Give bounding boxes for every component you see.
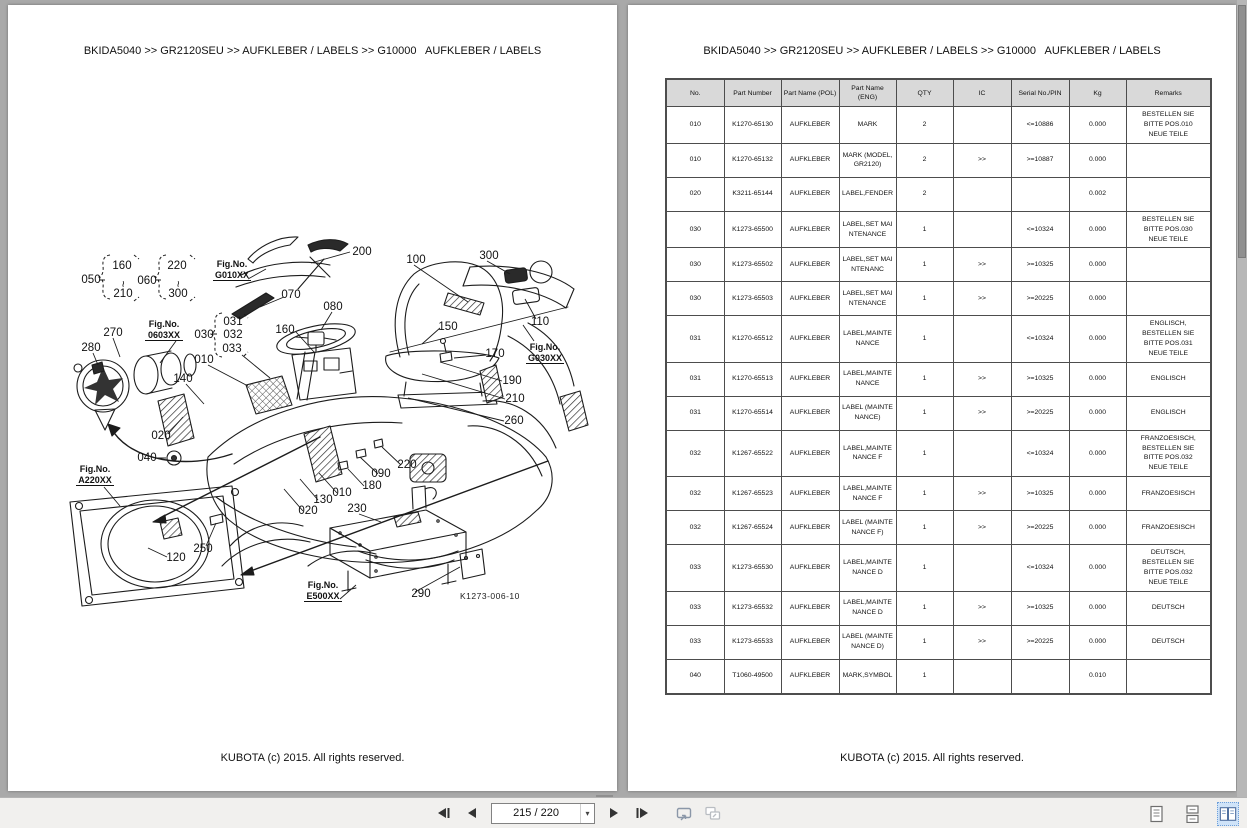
table-cell: K1267-65522: [724, 430, 781, 476]
table-cell: 1: [896, 211, 953, 248]
table-cell: >=10325: [1011, 248, 1069, 282]
table-row: 033K1273-65533AUFKLEBERLABEL (MAINTENANC…: [666, 625, 1211, 659]
table-cell: <=10324: [1011, 316, 1069, 362]
part-callout: 250: [193, 543, 212, 555]
table-cell: K1270-65132: [724, 143, 781, 177]
table-row: 033K1273-65532AUFKLEBERLABEL,MAINTENANCE…: [666, 591, 1211, 625]
table-cell: MARK: [839, 107, 896, 144]
column-header: Part Name (ENG): [839, 79, 896, 107]
figure-reference: Fig.No.A220XX: [76, 464, 114, 486]
table-cell: >>: [953, 396, 1011, 430]
table-cell: 1: [896, 511, 953, 545]
part-callout: 070: [281, 289, 300, 301]
table-cell: FRANZOESISCH: [1126, 511, 1211, 545]
table-cell: <=10324: [1011, 545, 1069, 591]
part-callout: 220: [397, 459, 416, 471]
table-cell: >=20225: [1011, 625, 1069, 659]
table-cell: 2: [896, 177, 953, 211]
part-callout: 220: [167, 260, 186, 272]
table-cell: 0.000: [1069, 282, 1126, 316]
single-page-view-icon: [1148, 805, 1164, 823]
tractor-exploded-diagram: 050160~210060220~30020010030007008011015…: [8, 5, 617, 791]
table-cell: 1: [896, 591, 953, 625]
table-cell: 2: [896, 107, 953, 144]
table-cell: LABEL,MAINTENANCE D: [839, 591, 896, 625]
figure-reference-value: G030XX: [528, 353, 562, 363]
table-cell: FRANZOESISCH: [1126, 477, 1211, 511]
table-cell: 0.000: [1069, 316, 1126, 362]
part-callout: 160: [275, 324, 294, 336]
table-cell: 0.010: [1069, 659, 1126, 694]
table-cell: K1273-65530: [724, 545, 781, 591]
part-callout: ~: [116, 281, 128, 288]
table-cell: LABEL,SET MAINTENANCE: [839, 282, 896, 316]
part-callout: 120: [166, 552, 185, 564]
table-cell: 0.000: [1069, 511, 1126, 545]
vertical-scrollbar[interactable]: [1237, 0, 1247, 797]
table-cell: 0.000: [1069, 211, 1126, 248]
table-cell: MARK (MODEL,GR2120): [839, 143, 896, 177]
table-cell: AUFKLEBER: [781, 143, 839, 177]
part-callout: 100: [406, 254, 425, 266]
table-row: 030K1273-65502AUFKLEBERLABEL,SET MAINTEN…: [666, 248, 1211, 282]
part-callout: 300: [168, 288, 187, 300]
table-cell: 033: [666, 625, 724, 659]
table-cell: AUFKLEBER: [781, 316, 839, 362]
part-callout: 140: [173, 373, 192, 385]
column-header: Remarks: [1126, 79, 1211, 107]
table-cell: AUFKLEBER: [781, 591, 839, 625]
table-cell: [1011, 177, 1069, 211]
table-cell: K1273-65532: [724, 591, 781, 625]
part-callout: 150: [438, 321, 457, 333]
table-cell: 030: [666, 211, 724, 248]
table-cell: LABEL,SET MAINTENANC: [839, 248, 896, 282]
viewer-toolbar: 215 / 220 ▾: [0, 797, 1247, 828]
previous-page-button[interactable]: [462, 802, 484, 824]
table-cell: [953, 107, 1011, 144]
next-page-button[interactable]: [602, 802, 624, 824]
two-page-view-icon: [1219, 805, 1237, 823]
right-page: BKIDA5040 >> GR2120SEU >> AUFKLEBER / LA…: [628, 5, 1236, 791]
previous-page-icon: [465, 805, 481, 821]
table-row: 032K1267-65523AUFKLEBERLABEL,MAINTENANCE…: [666, 477, 1211, 511]
table-cell: 0.000: [1069, 362, 1126, 396]
part-callout: 180: [362, 480, 381, 492]
header-row: No.Part NumberPart Name (POL)Part Name (…: [666, 79, 1211, 107]
table-cell: >>: [953, 477, 1011, 511]
table-cell: 0.000: [1069, 143, 1126, 177]
table-cell: LABEL,MAINTENANCE: [839, 362, 896, 396]
table-cell: AUFKLEBER: [781, 282, 839, 316]
table-cell: ENGLISCH: [1126, 396, 1211, 430]
table-cell: 0.000: [1069, 477, 1126, 511]
table-cell: 031: [666, 396, 724, 430]
part-callout: 290: [411, 588, 430, 600]
table-row: 040T1060-49500AUFKLEBERMARK,SYMBOL10.010: [666, 659, 1211, 694]
table-cell: >=20225: [1011, 511, 1069, 545]
column-header: No.: [666, 79, 724, 107]
table-cell: AUFKLEBER: [781, 362, 839, 396]
chevron-down-icon: ▾: [580, 804, 594, 823]
first-page-button[interactable]: [433, 802, 455, 824]
table-cell: AUFKLEBER: [781, 396, 839, 430]
table-cell: 0.000: [1069, 545, 1126, 591]
part-callout: 110: [531, 316, 549, 328]
copyright-footer: KUBOTA (c) 2015. All rights reserved.: [628, 752, 1236, 764]
table-cell: [1126, 177, 1211, 211]
table-cell: [953, 316, 1011, 362]
table-row: 030K1273-65503AUFKLEBERLABEL,SET MAINTEN…: [666, 282, 1211, 316]
table-cell: K1270-65130: [724, 107, 781, 144]
table-cell: >=10325: [1011, 591, 1069, 625]
table-cell: T1060-49500: [724, 659, 781, 694]
part-callout: 090: [371, 468, 390, 480]
table-cell: [953, 177, 1011, 211]
parts-table-header: No.Part NumberPart Name (POL)Part Name (…: [666, 79, 1211, 107]
table-cell: 030: [666, 248, 724, 282]
table-cell: [953, 545, 1011, 591]
part-callout: 031: [223, 316, 242, 328]
column-header: Serial No./PIN: [1011, 79, 1069, 107]
table-cell: >>: [953, 362, 1011, 396]
table-cell: >=10325: [1011, 362, 1069, 396]
part-callout: 020: [298, 505, 317, 517]
table-cell: 032: [666, 477, 724, 511]
page-indicator: 215 / 220: [492, 807, 580, 819]
table-row: 030K1273-65500AUFKLEBERLABEL,SET MAINTEN…: [666, 211, 1211, 248]
breadcrumb: BKIDA5040 >> GR2120SEU >> AUFKLEBER / LA…: [628, 45, 1236, 57]
last-page-icon: [634, 805, 650, 821]
table-cell: 1: [896, 248, 953, 282]
continuous-view-icon: [1184, 805, 1200, 823]
table-cell: 033: [666, 591, 724, 625]
table-cell: AUFKLEBER: [781, 545, 839, 591]
parts-table: No.Part NumberPart Name (POL)Part Name (…: [665, 78, 1212, 695]
table-cell: 1: [896, 625, 953, 659]
table-cell: LABEL (MAINTENANCE F): [839, 511, 896, 545]
table-cell: [1126, 248, 1211, 282]
table-cell: K1273-65533: [724, 625, 781, 659]
table-row: 032K1267-65524AUFKLEBERLABEL (MAINTENANC…: [666, 511, 1211, 545]
table-cell: >>: [953, 282, 1011, 316]
table-cell: ENGLISCH, BESTELLEN SIE BITTE POS.031 NE…: [1126, 316, 1211, 362]
table-cell: K1267-65524: [724, 511, 781, 545]
next-page-icon: [605, 805, 621, 821]
table-cell: 1: [896, 659, 953, 694]
parts-table-body: 010K1270-65130AUFKLEBERMARK2<=108860.000…: [666, 107, 1211, 694]
table-cell: <=10886: [1011, 107, 1069, 144]
part-callout: ~: [171, 281, 183, 288]
figure-reference: Fig.No.G010XX: [213, 259, 251, 281]
table-cell: AUFKLEBER: [781, 248, 839, 282]
table-row: 031K1270-65512AUFKLEBERLABEL,MAINTENANCE…: [666, 316, 1211, 362]
first-page-icon: [436, 805, 452, 821]
part-callout: 030: [194, 329, 213, 341]
table-cell: 1: [896, 362, 953, 396]
column-header: QTY: [896, 79, 953, 107]
popout-copy-button[interactable]: [702, 802, 724, 824]
table-cell: >>: [953, 248, 1011, 282]
table-cell: 032: [666, 430, 724, 476]
table-cell: [1126, 659, 1211, 694]
table-cell: LABEL,MAINTENANCE D: [839, 545, 896, 591]
figure-reference-value: E500XX: [306, 591, 339, 601]
table-row: 033K1273-65530AUFKLEBERLABEL,MAINTENANCE…: [666, 545, 1211, 591]
table-cell: [953, 211, 1011, 248]
table-cell: LABEL,MAINTENANCE: [839, 316, 896, 362]
table-cell: 030: [666, 282, 724, 316]
part-callout: 270: [103, 327, 122, 339]
figure-reference: Fig.No.0603XX: [145, 319, 183, 341]
table-cell: K1273-65500: [724, 211, 781, 248]
column-header: Kg: [1069, 79, 1126, 107]
table-cell: >=20225: [1011, 282, 1069, 316]
table-cell: BESTELLEN SIE BITTE POS.010 NEUE TEILE: [1126, 107, 1211, 144]
part-callout: 160: [112, 260, 131, 272]
part-callout: 200: [352, 246, 371, 258]
part-callout: 010: [194, 354, 213, 366]
part-callout: 170: [485, 348, 504, 360]
figure-reference: Fig.No.G030XX: [526, 342, 564, 364]
table-cell: LABEL (MAINTENANCE D): [839, 625, 896, 659]
table-cell: 0.000: [1069, 591, 1126, 625]
table-cell: K1273-65502: [724, 248, 781, 282]
continuous-view-button[interactable]: [1181, 802, 1203, 826]
scrollbar-thumb[interactable]: [1238, 5, 1246, 258]
table-cell: DEUTSCH: [1126, 625, 1211, 659]
part-callout: 190: [502, 375, 521, 387]
table-cell: 0.000: [1069, 396, 1126, 430]
figure-reference: Fig.No.E500XX: [304, 580, 342, 602]
table-cell: AUFKLEBER: [781, 625, 839, 659]
table-cell: AUFKLEBER: [781, 211, 839, 248]
table-cell: DEUTSCH, BESTELLEN SIE BITTE POS.032 NEU…: [1126, 545, 1211, 591]
table-cell: >>: [953, 591, 1011, 625]
drawing-number: K1273-006-10: [460, 591, 520, 601]
table-cell: LABEL,FENDER: [839, 177, 896, 211]
table-cell: 1: [896, 316, 953, 362]
table-cell: 010: [666, 143, 724, 177]
part-callout: 210: [505, 393, 524, 405]
table-cell: <=10324: [1011, 430, 1069, 476]
copyright-footer: KUBOTA (c) 2015. All rights reserved.: [8, 752, 617, 764]
figure-reference-value: G010XX: [215, 270, 249, 280]
column-header: IC: [953, 79, 1011, 107]
table-cell: 040: [666, 659, 724, 694]
table-cell: 032: [666, 511, 724, 545]
part-callout: 032: [223, 329, 242, 341]
popout-page-button[interactable]: [673, 802, 695, 824]
table-cell: 0.000: [1069, 430, 1126, 476]
table-cell: AUFKLEBER: [781, 477, 839, 511]
table-cell: 031: [666, 316, 724, 362]
part-callout: 010: [332, 487, 351, 499]
table-cell: >>: [953, 143, 1011, 177]
table-cell: 020: [666, 177, 724, 211]
table-cell: AUFKLEBER: [781, 177, 839, 211]
table-cell: 2: [896, 143, 953, 177]
single-page-view-button[interactable]: [1145, 802, 1167, 826]
table-cell: [953, 430, 1011, 476]
table-cell: 031: [666, 362, 724, 396]
table-cell: 1: [896, 430, 953, 476]
table-cell: 1: [896, 282, 953, 316]
page-navigation-group: 215 / 220 ▾: [433, 802, 724, 824]
part-callout: 280: [81, 342, 100, 354]
column-header: Part Name (POL): [781, 79, 839, 107]
column-header: Part Number: [724, 79, 781, 107]
table-cell: ENGLISCH: [1126, 362, 1211, 396]
table-row: 031K1270-65514AUFKLEBERLABEL (MAINTENANC…: [666, 396, 1211, 430]
figure-reference-value: A220XX: [78, 475, 112, 485]
table-cell: >=10325: [1011, 477, 1069, 511]
figure-reference-value: 0603XX: [148, 330, 180, 340]
viewer-window: BKIDA5040 >> GR2120SEU >> AUFKLEBER / LA…: [0, 0, 1247, 828]
table-row: 020K3211-65144AUFKLEBERLABEL,FENDER20.00…: [666, 177, 1211, 211]
table-cell: 0.000: [1069, 107, 1126, 144]
table-cell: K1270-65514: [724, 396, 781, 430]
table-cell: 033: [666, 545, 724, 591]
table-cell: AUFKLEBER: [781, 511, 839, 545]
part-callout: 260: [504, 415, 523, 427]
part-callout: 020: [151, 430, 170, 442]
part-callout: 050: [81, 274, 100, 286]
part-callout: 300: [479, 250, 498, 262]
table-row: 032K1267-65522AUFKLEBERLABEL,MAINTENANCE…: [666, 430, 1211, 476]
table-cell: >=10887: [1011, 143, 1069, 177]
table-cell: >=20225: [1011, 396, 1069, 430]
table-cell: K1267-65523: [724, 477, 781, 511]
last-page-button[interactable]: [631, 802, 653, 824]
table-cell: K1270-65513: [724, 362, 781, 396]
part-callout: 040: [137, 452, 156, 464]
two-page-view-button[interactable]: [1217, 802, 1239, 826]
table-cell: LABEL,MAINTENANCE F: [839, 430, 896, 476]
table-cell: >>: [953, 625, 1011, 659]
table-cell: LABEL,SET MAINTENANCE: [839, 211, 896, 248]
figure-reference-label: Fig.No.: [308, 580, 339, 590]
table-cell: AUFKLEBER: [781, 659, 839, 694]
view-mode-group: [1145, 802, 1239, 826]
table-cell: LABEL (MAINTENANCE): [839, 396, 896, 430]
left-page: BKIDA5040 >> GR2120SEU >> AUFKLEBER / LA…: [8, 5, 617, 791]
table-cell: 010: [666, 107, 724, 144]
table-cell: AUFKLEBER: [781, 430, 839, 476]
table-cell: 0.000: [1069, 248, 1126, 282]
table-cell: K3211-65144: [724, 177, 781, 211]
table-cell: AUFKLEBER: [781, 107, 839, 144]
table-cell: K1270-65512: [724, 316, 781, 362]
table-cell: 1: [896, 545, 953, 591]
table-cell: 0.002: [1069, 177, 1126, 211]
table-cell: MARK,SYMBOL: [839, 659, 896, 694]
table-cell: 1: [896, 477, 953, 511]
part-callout: 080: [323, 301, 342, 313]
part-callout: 210: [113, 288, 132, 300]
table-cell: [1126, 282, 1211, 316]
figure-reference-label: Fig.No.: [149, 319, 180, 329]
part-callout: 033: [222, 343, 241, 355]
figure-reference-label: Fig.No.: [530, 342, 561, 352]
table-row: 010K1270-65132AUFKLEBERMARK (MODEL,GR212…: [666, 143, 1211, 177]
page-number-select[interactable]: 215 / 220 ▾: [491, 803, 595, 824]
popout-page-icon: [675, 805, 693, 822]
table-cell: FRANZOESISCH, BESTELLEN SIE BITTE POS.03…: [1126, 430, 1211, 476]
table-row: 010K1270-65130AUFKLEBERMARK2<=108860.000…: [666, 107, 1211, 144]
table-cell: 0.000: [1069, 625, 1126, 659]
table-cell: [1126, 143, 1211, 177]
table-row: 031K1270-65513AUFKLEBERLABEL,MAINTENANCE…: [666, 362, 1211, 396]
table-cell: [953, 659, 1011, 694]
table-cell: [1011, 659, 1069, 694]
table-cell: >>: [953, 511, 1011, 545]
part-callout: 060: [137, 275, 156, 287]
figure-reference-label: Fig.No.: [80, 464, 111, 474]
table-cell: DEUTSCH: [1126, 591, 1211, 625]
part-callout: 230: [347, 503, 366, 515]
table-cell: K1273-65503: [724, 282, 781, 316]
table-cell: BESTELLEN SIE BITTE POS.030 NEUE TEILE: [1126, 211, 1211, 248]
popout-copy-icon: [704, 805, 722, 822]
table-cell: 1: [896, 396, 953, 430]
table-cell: LABEL,MAINTENANCE F: [839, 477, 896, 511]
table-cell: <=10324: [1011, 211, 1069, 248]
figure-reference-label: Fig.No.: [217, 259, 248, 269]
